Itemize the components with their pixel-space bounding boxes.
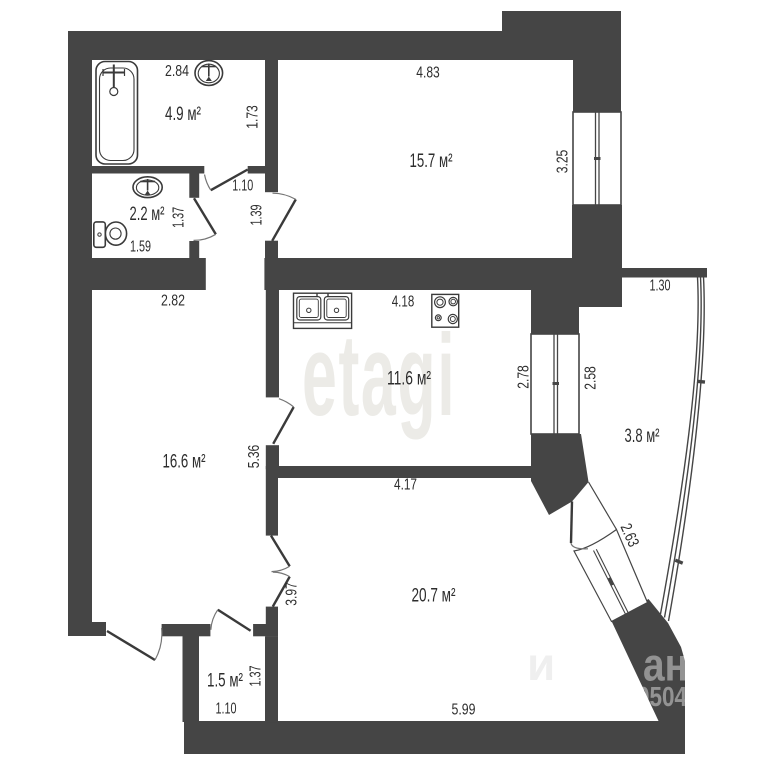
svg-text:2.2 м²: 2.2 м² xyxy=(130,204,165,225)
svg-text:4.9 м²: 4.9 м² xyxy=(165,104,201,125)
svg-text:1.39: 1.39 xyxy=(248,204,265,225)
svg-text:1.10: 1.10 xyxy=(232,178,253,195)
svg-text:1.73: 1.73 xyxy=(245,105,262,129)
svg-text:4.18: 4.18 xyxy=(392,294,415,311)
svg-text:1.10: 1.10 xyxy=(216,701,237,718)
svg-text:1.5 м²: 1.5 м² xyxy=(207,671,243,692)
svg-text:2.78: 2.78 xyxy=(516,365,533,389)
svg-text:2.58: 2.58 xyxy=(583,366,600,390)
svg-text:1.37: 1.37 xyxy=(170,207,187,228)
svg-text:20.7 м²: 20.7 м² xyxy=(412,586,456,607)
svg-text:etagi: etagi xyxy=(302,310,456,439)
svg-text:1.30: 1.30 xyxy=(650,278,671,295)
svg-text:3.97: 3.97 xyxy=(284,582,301,606)
svg-text:11.6 м²: 11.6 м² xyxy=(387,369,431,390)
svg-text:3.25: 3.25 xyxy=(555,150,572,174)
svg-text:2.82: 2.82 xyxy=(161,293,185,310)
svg-text:0504: 0504 xyxy=(637,681,687,712)
svg-text:1.37: 1.37 xyxy=(248,665,265,686)
svg-text:и: и xyxy=(527,638,555,690)
svg-text:5.36: 5.36 xyxy=(246,445,263,469)
svg-text:5.99: 5.99 xyxy=(452,702,476,719)
svg-text:3.8 м²: 3.8 м² xyxy=(625,426,660,447)
svg-text:15.7 м²: 15.7 м² xyxy=(410,151,453,172)
svg-text:4.17: 4.17 xyxy=(394,477,417,494)
svg-text:4.83: 4.83 xyxy=(416,65,440,82)
svg-text:1.59: 1.59 xyxy=(130,239,151,256)
svg-text:2.84: 2.84 xyxy=(165,63,189,80)
svg-text:16.6 м²: 16.6 м² xyxy=(163,452,206,473)
